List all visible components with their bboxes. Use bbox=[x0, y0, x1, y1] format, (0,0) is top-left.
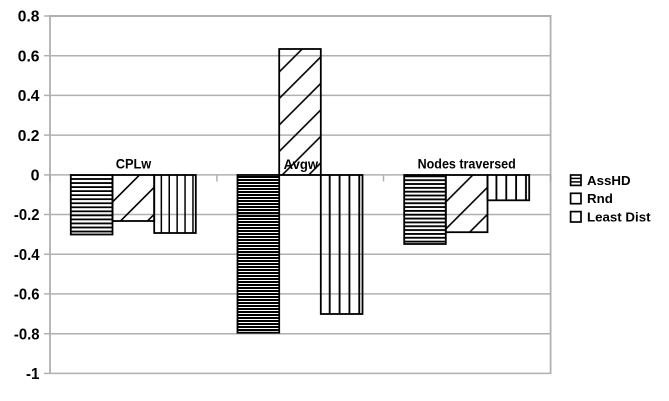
svg-text:Avgw: Avgw bbox=[284, 157, 319, 172]
svg-text:0.2: 0.2 bbox=[18, 128, 40, 145]
svg-text:Least Dist: Least Dist bbox=[587, 210, 651, 225]
svg-text:0.4: 0.4 bbox=[18, 88, 40, 105]
svg-text:Nodes traversed: Nodes traversed bbox=[418, 156, 516, 171]
svg-text:-0.8: -0.8 bbox=[14, 326, 40, 343]
svg-text:-0.4: -0.4 bbox=[14, 247, 40, 264]
svg-text:0.8: 0.8 bbox=[18, 9, 40, 26]
svg-text:AssHD: AssHD bbox=[587, 173, 631, 188]
svg-text:0: 0 bbox=[31, 168, 40, 185]
svg-text:-1: -1 bbox=[26, 366, 40, 383]
svg-text:-0.6: -0.6 bbox=[14, 287, 40, 304]
svg-text:-0.2: -0.2 bbox=[14, 207, 40, 224]
svg-text:0.6: 0.6 bbox=[18, 48, 40, 65]
svg-text:CPLw: CPLw bbox=[116, 157, 152, 172]
svg-text:Rnd: Rnd bbox=[587, 191, 613, 206]
